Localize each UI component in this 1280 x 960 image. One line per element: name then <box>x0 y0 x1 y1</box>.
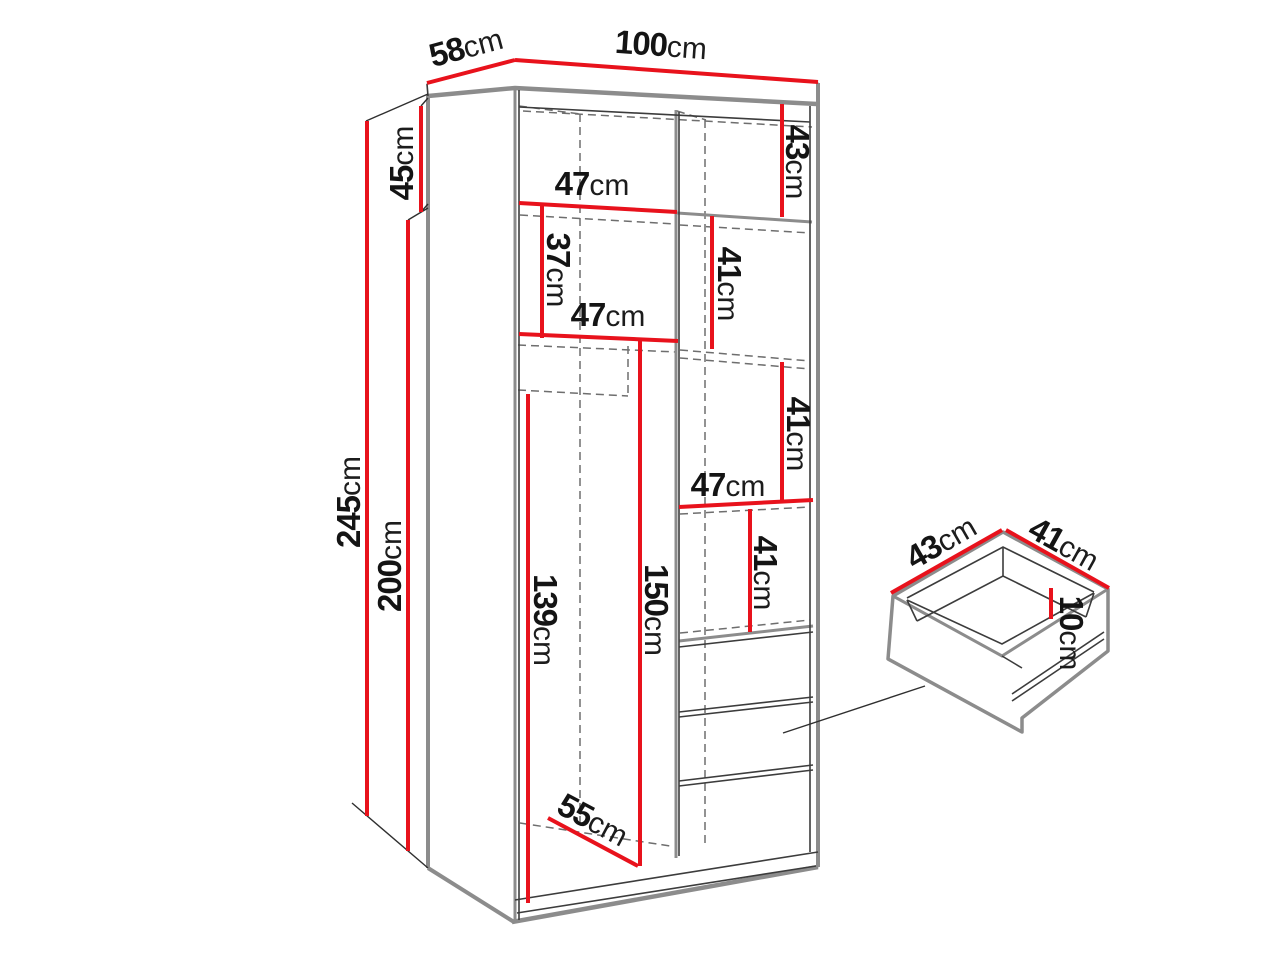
left-side-panel <box>428 88 515 922</box>
dim-width-label: 100cm <box>614 23 708 66</box>
drawer-depth-label: 41cm <box>1023 509 1106 578</box>
dim-41b-label: 41cm <box>780 397 817 472</box>
wardrobe-dimension-diagram: 58cm 100cm 45cm 245cm 200cm 43cm 47cm 37… <box>0 0 1280 960</box>
dim-139-label: 139cm <box>527 574 564 666</box>
drawer-height-label: 10cm <box>1053 596 1090 671</box>
dimension-diagram-page: 58cm 100cm 45cm 245cm 200cm 43cm 47cm 37… <box>0 0 1280 960</box>
dim-41c-label: 41cm <box>747 536 784 611</box>
dim-top-section-label: 45cm <box>383 126 420 201</box>
shelf-right-width-label: 47cm <box>691 466 766 503</box>
dim-body-height-label: 200cm <box>371 520 408 612</box>
dim-top-inner-label: 43cm <box>779 125 816 200</box>
dim-150-label: 150cm <box>638 564 675 656</box>
dim-height-label: 245cm <box>330 456 367 548</box>
dim-41a-label: 41cm <box>711 247 748 322</box>
shelf-top-width-label: 47cm <box>555 165 630 202</box>
shelf-mid-width-label: 47cm <box>571 296 646 333</box>
